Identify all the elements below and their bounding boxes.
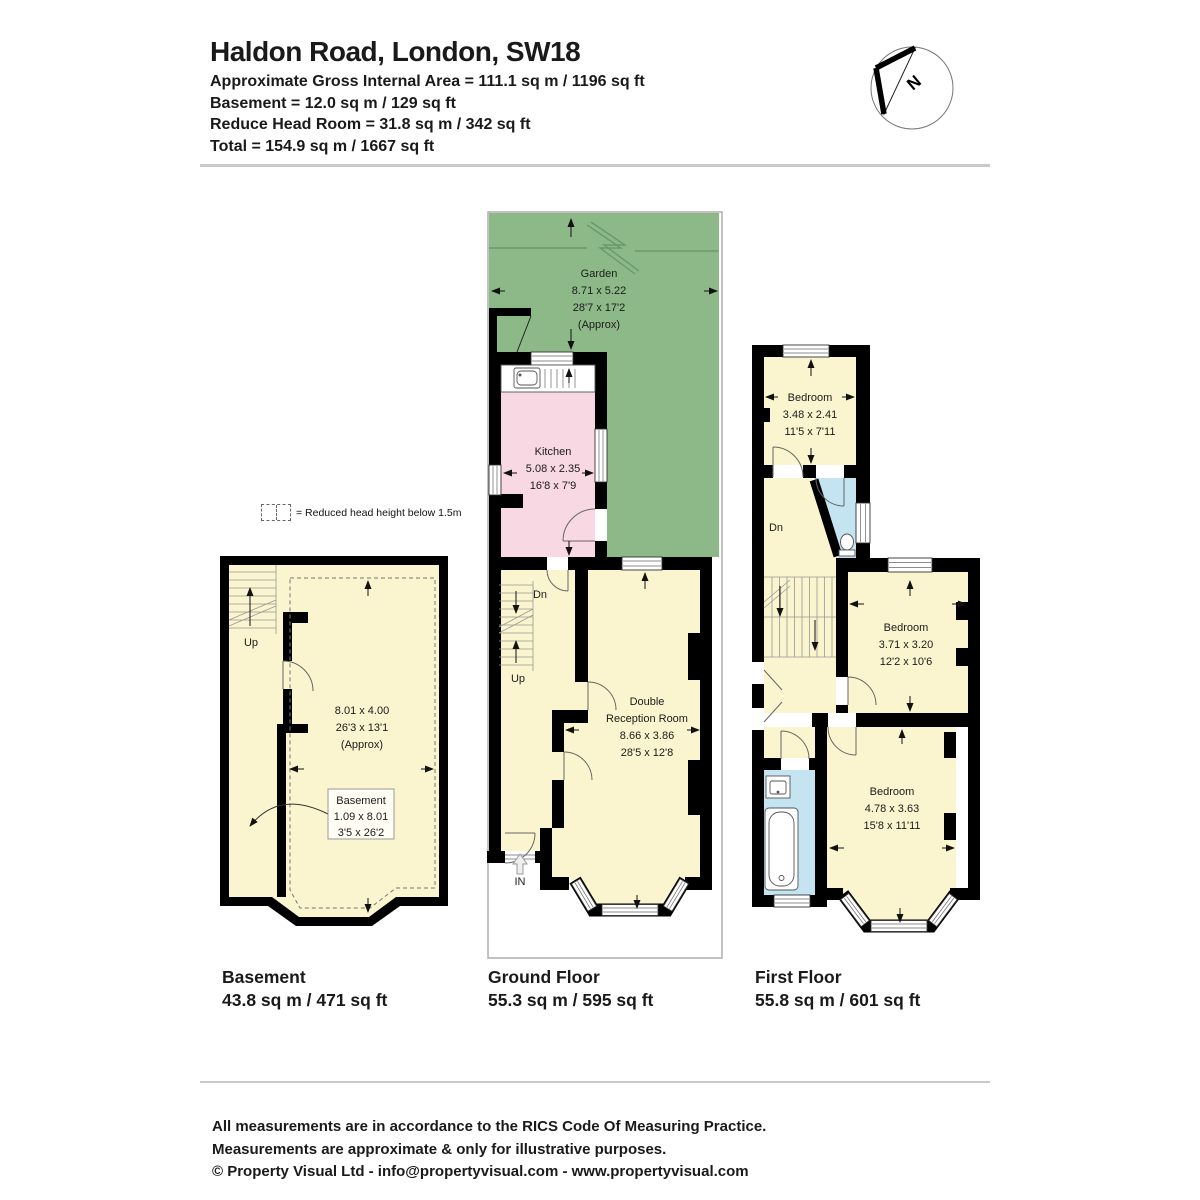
bedroom3-dims-m: 4.78 x 3.63	[865, 803, 919, 815]
footer-copyright-line: © Property Visual Ltd - info@propertyvis…	[212, 1161, 766, 1184]
basement-floor-name: Basement	[222, 966, 387, 989]
garden-dims-ft: 28'7 x 17'2	[573, 302, 626, 314]
bedroom1-dims-m: 3.48 x 2.41	[783, 409, 837, 421]
footer-approx-line: Measurements are approximate & only for …	[212, 1139, 766, 1162]
kitchen-window-right	[595, 429, 607, 482]
reduced-head-height-legend: = Reduced head height below 1.5m	[261, 504, 462, 521]
footer-rics-line: All measurements are in accordance to th…	[212, 1116, 766, 1139]
page-title: Haldon Road, London, SW18	[210, 36, 645, 68]
wc-window	[856, 503, 870, 543]
basement-room-label: 8.01 x 4.00 26'3 x 13'1 (Approx)	[335, 705, 389, 751]
bedroom3-name: Bedroom	[870, 786, 915, 798]
ground-floor-area: 55.3 sq m / 595 sq ft	[488, 989, 653, 1012]
basement-area-line: Basement = 12.0 sq m / 129 sq ft	[210, 93, 645, 115]
kitchen-window-top	[531, 352, 573, 365]
basement-stair-label: Up	[244, 637, 258, 649]
ground-stair-dn-label: Dn	[533, 589, 547, 601]
first-floor-area: 55.8 sq m / 601 sq ft	[755, 989, 920, 1012]
kitchen-dims-ft: 16'8 x 7'9	[530, 480, 576, 492]
reception-window	[622, 557, 662, 570]
garden-approx: (Approx)	[578, 319, 620, 331]
basement-approx: (Approx)	[341, 739, 383, 751]
bedroom2-dims-m: 3.71 x 3.20	[879, 639, 933, 651]
toilet-icon	[839, 534, 855, 556]
kitchen-sink-icon	[501, 365, 595, 392]
bedroom1-label: Bedroom 3.48 x 2.41 11'5 x 7'11	[783, 392, 837, 438]
bedroom1-dims-ft: 11'5 x 7'11	[785, 426, 836, 438]
bedroom1-window	[783, 345, 829, 357]
bedroom3-label: Bedroom 4.78 x 3.63 15'8 x 11'11	[863, 786, 920, 832]
basement-dims-m: 8.01 x 4.00	[335, 705, 389, 717]
footer: All measurements are in accordance to th…	[212, 1116, 766, 1184]
bedroom2-dims-ft: 12'2 x 10'6	[880, 656, 933, 668]
bathtub-icon	[765, 808, 798, 890]
ground-label-block: Ground Floor 55.3 sq m / 595 sq ft	[488, 966, 653, 1012]
first-label-block: First Floor 55.8 sq m / 601 sq ft	[755, 966, 920, 1012]
kitchen-room: Kitchen 5.08 x 2.35 16'8 x 7'9	[489, 352, 607, 570]
compass-north-label: N	[903, 72, 925, 94]
bedroom2-name: Bedroom	[884, 622, 929, 634]
bedroom1-name: Bedroom	[788, 392, 833, 404]
reduced-headroom-line: Reduce Head Room = 31.8 sq m / 342 sq ft	[210, 114, 645, 136]
floorplan-page: Haldon Road, London, SW18 Approximate Gr…	[0, 0, 1200, 1200]
reception-name1: Double	[630, 696, 665, 708]
kitchen-dims-m: 5.08 x 2.35	[526, 463, 580, 475]
first-floor-plan: Dn	[750, 340, 982, 940]
basement-dims-ft: 26'3 x 13'1	[336, 722, 389, 734]
dashed-legend-swatch	[261, 504, 291, 521]
first-stair-dn-label: Dn	[769, 522, 783, 534]
header-divider	[200, 164, 990, 167]
bathroom-window	[774, 895, 810, 907]
kitchen-name: Kitchen	[535, 446, 572, 458]
kitchen-window-left	[489, 465, 501, 495]
basement-floor-plan: Up 8.01 x 4.00 26'3 x 13'1 (Approx) Base…	[220, 556, 448, 928]
garden-dims-m: 8.71 x 5.22	[572, 285, 626, 297]
bedroom2-window	[888, 558, 932, 572]
callout-name: Basement	[336, 795, 386, 807]
garden-name: Garden	[581, 268, 618, 280]
legend-label: = Reduced head height below 1.5m	[296, 507, 462, 519]
header: Haldon Road, London, SW18 Approximate Gr…	[210, 36, 645, 157]
callout-dims-ft: 3'5 x 26'2	[338, 827, 384, 839]
ground-floor-name: Ground Floor	[488, 966, 653, 989]
basement-floor-area: 43.8 sq m / 471 sq ft	[222, 989, 387, 1012]
entrance-in-label: IN	[515, 876, 526, 888]
total-area-line: Total = 154.9 sq m / 1667 sq ft	[210, 136, 645, 158]
first-floor-name: First Floor	[755, 966, 920, 989]
reception-name2: Reception Room	[606, 713, 688, 725]
bathroom-sink-icon	[766, 776, 790, 798]
basement-label-block: Basement 43.8 sq m / 471 sq ft	[222, 966, 387, 1012]
gross-area-line: Approximate Gross Internal Area = 111.1 …	[210, 71, 645, 93]
footer-divider	[200, 1081, 990, 1083]
callout-dims-m: 1.09 x 8.01	[334, 811, 388, 823]
ground-stair-up-label: Up	[511, 673, 525, 685]
compass-icon: N	[862, 36, 966, 140]
reception-dims-m: 8.66 x 3.86	[620, 730, 674, 742]
reception-dims-ft: 28'5 x 12'8	[621, 747, 674, 759]
ground-floor-plan: Garden 8.71 x 5.22 28'7 x 17'2 (Approx)	[487, 211, 723, 961]
ground-floor-rooms: Dn Up IN	[487, 557, 712, 916]
bedroom3-dims-ft: 15'8 x 11'11	[863, 820, 920, 832]
bedroom2-label: Bedroom 3.71 x 3.20 12'2 x 10'6	[879, 622, 933, 668]
basement-walls	[220, 556, 448, 926]
